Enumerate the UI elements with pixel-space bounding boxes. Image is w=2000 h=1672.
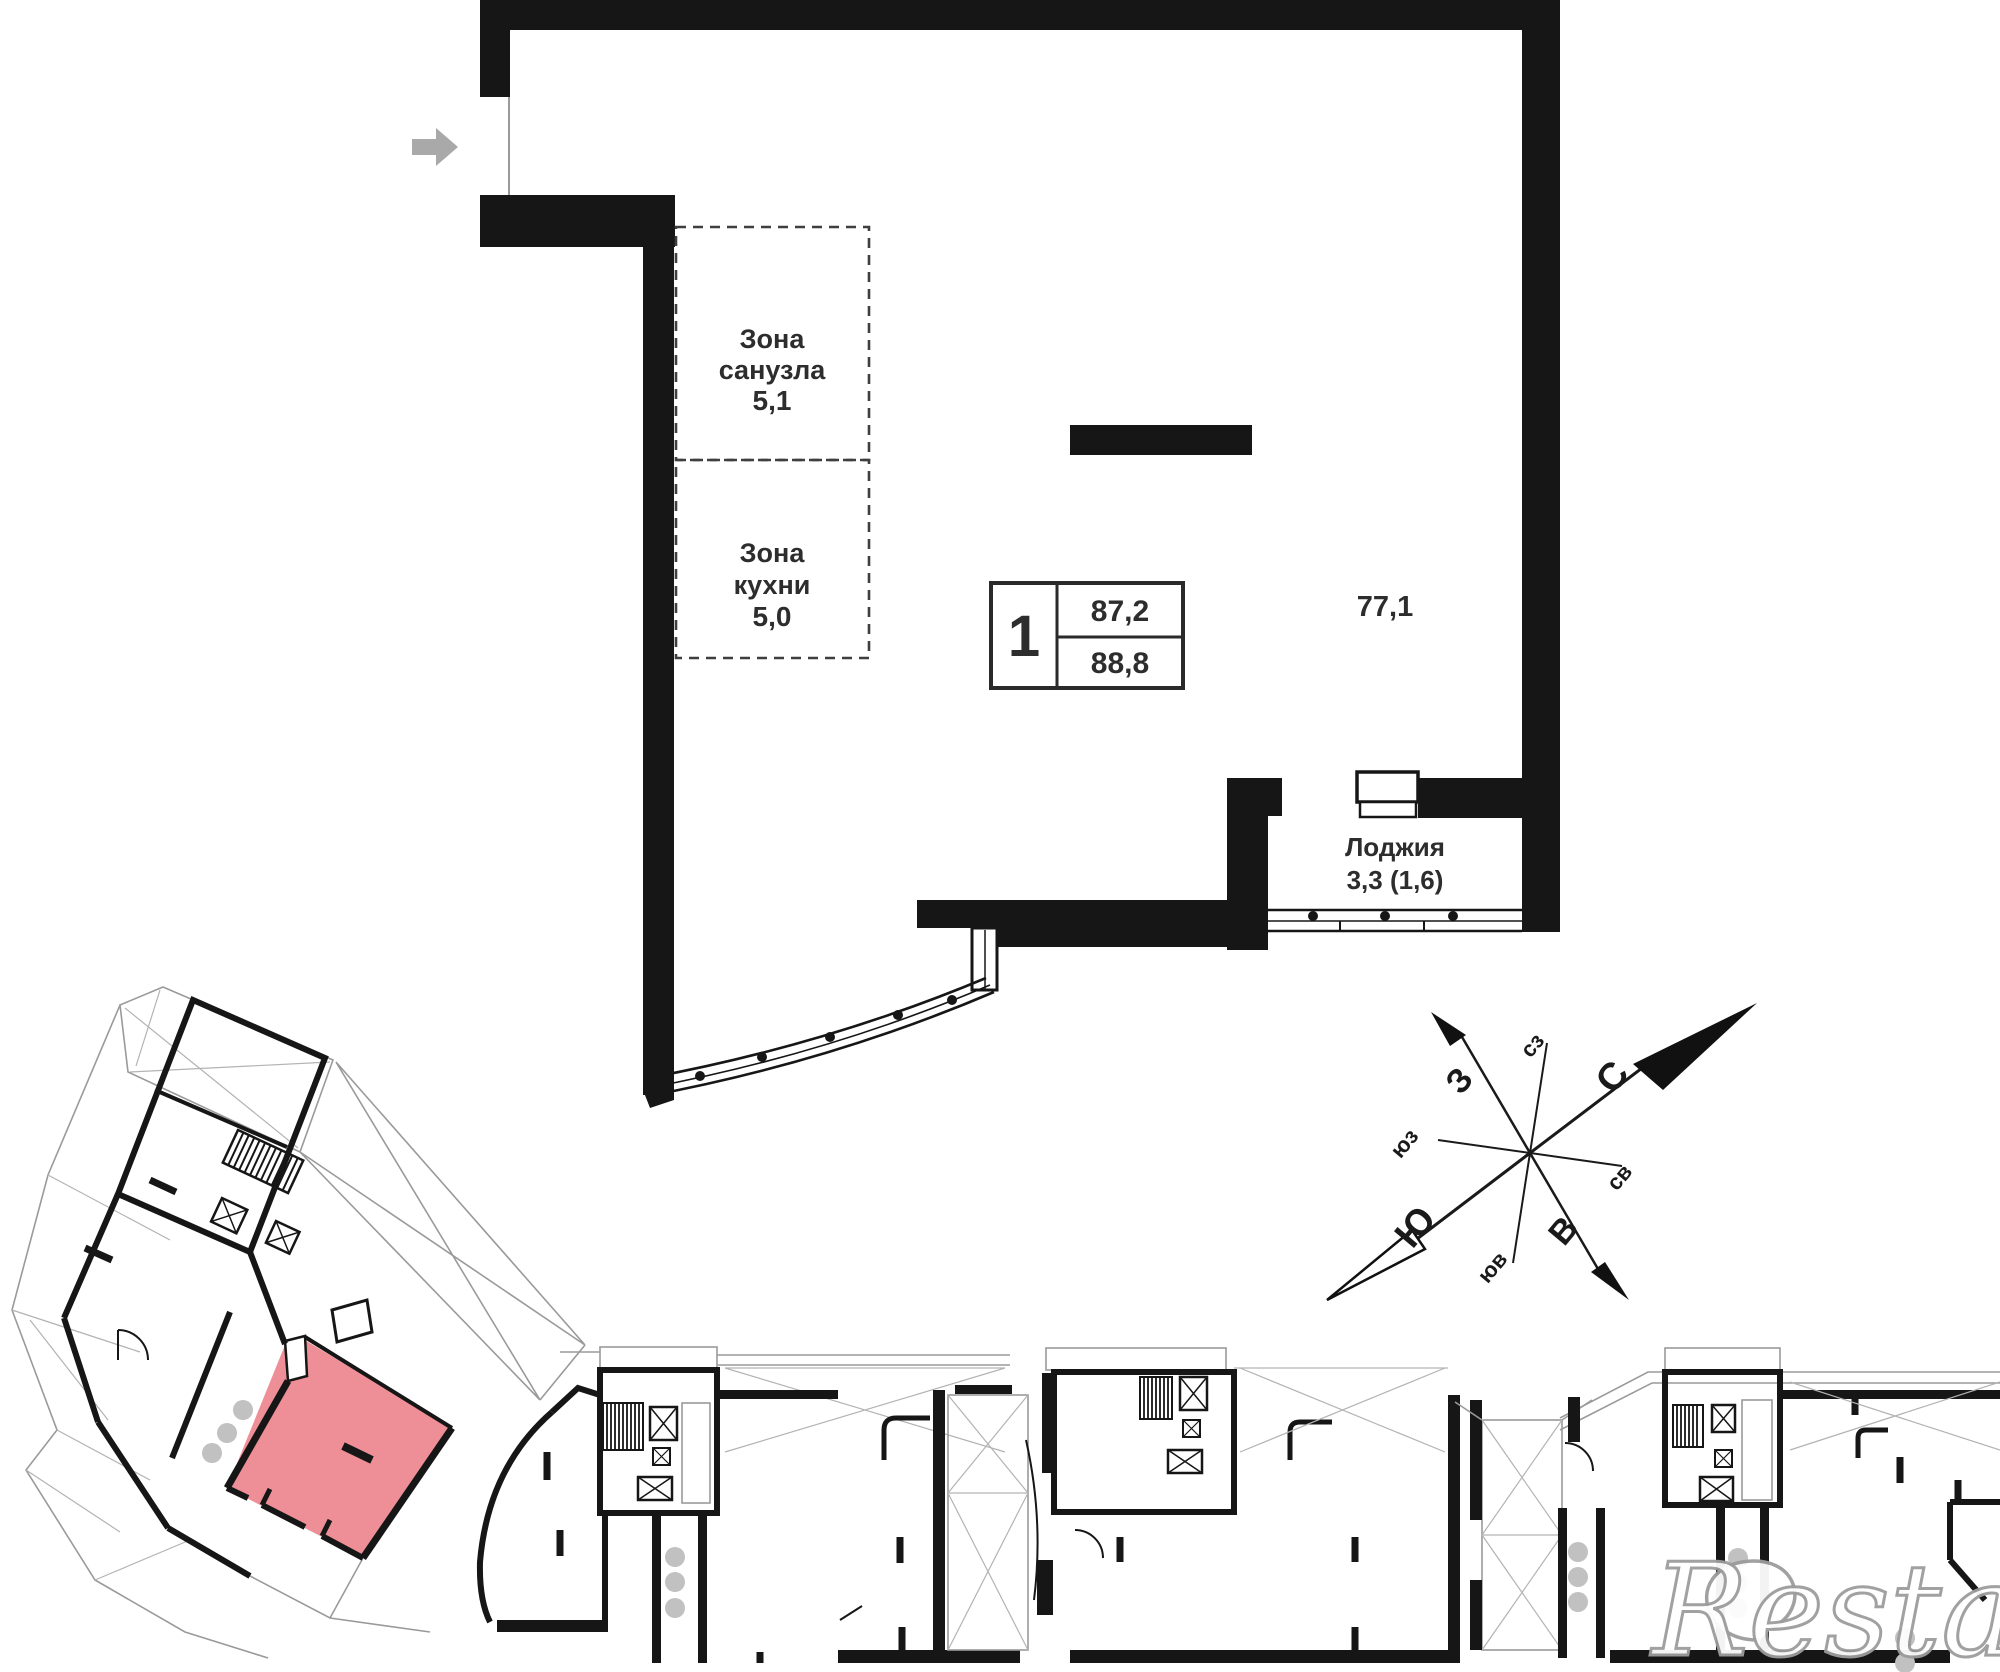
zone-bathroom-line1: Зона (740, 324, 806, 354)
entry-arrow-icon (412, 128, 458, 166)
watermark: Restate (1650, 1537, 2000, 1672)
compass-label-west: З (1438, 1061, 1481, 1102)
zone-kitchen-line2: кухни (734, 570, 811, 600)
zone-kitchen-line1: Зона (740, 538, 806, 568)
zone-bathroom-line2: санузла (719, 355, 827, 385)
floorplan-page: 1 87,2 88,8 Зона санузла 5,1 Зона кухни … (0, 0, 2000, 1672)
apartment-walls (480, 0, 1560, 1108)
zone-kitchen-area: 5,0 (753, 601, 792, 632)
zone-bathroom-area: 5,1 (753, 385, 792, 416)
compass-rose: С Ю З В сз юз юв св (1327, 1003, 1757, 1300)
left-wing (12, 987, 585, 1658)
loggia-label: Лоджия (1345, 832, 1445, 862)
area-main: 87,2 (1091, 595, 1149, 628)
compass-north-arrow-icon (1633, 1003, 1757, 1090)
window-glazing-curved (648, 928, 997, 1096)
terrace-strip-1 (948, 1373, 1054, 1650)
apartment-plan: 1 87,2 88,8 Зона санузла 5,1 Зона кухни … (412, 0, 1560, 1108)
area-total: 88,8 (1091, 647, 1149, 680)
highlighted-unit[interactable] (227, 1339, 452, 1558)
left-wing-elevator2-icon (266, 1221, 300, 1254)
watermark-text: Restate (1650, 1537, 2000, 1672)
rooms-count: 1 (1008, 604, 1040, 669)
compass-label-se: юв (1472, 1247, 1512, 1288)
middle-tower (480, 1347, 1020, 1663)
left-wing-elevator-icon (211, 1198, 247, 1233)
compass-label-east: В (1541, 1209, 1586, 1252)
compass-label-sw: юз (1385, 1124, 1423, 1163)
compass-west-arrow-icon (1431, 1012, 1466, 1046)
compass-label-north: С (1588, 1053, 1638, 1101)
room-area-label: 77,1 (1357, 591, 1413, 623)
right-tower (1046, 1348, 1460, 1663)
loggia-area: 3,3 (1,6) (1347, 865, 1444, 895)
